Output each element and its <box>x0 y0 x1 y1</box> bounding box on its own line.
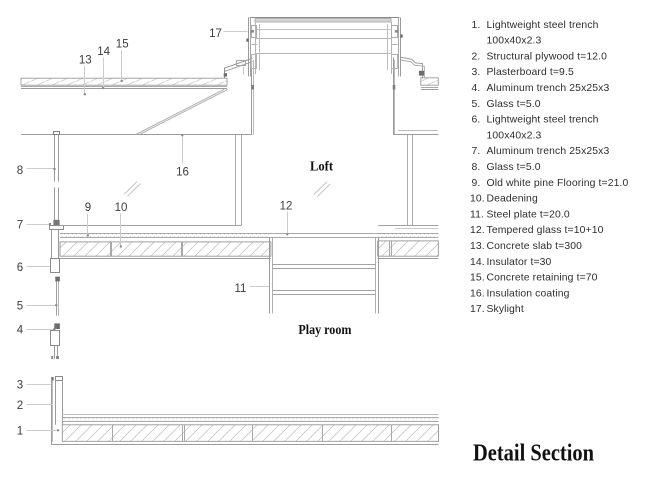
svg-text:11.: 11. <box>470 209 484 220</box>
svg-text:8.: 8. <box>472 162 481 173</box>
svg-text:12.: 12. <box>470 225 485 236</box>
svg-text:2: 2 <box>17 400 23 412</box>
svg-text:7.: 7. <box>472 146 481 157</box>
svg-text:3.: 3. <box>472 67 481 78</box>
svg-text:13.: 13. <box>470 241 485 252</box>
svg-text:9: 9 <box>85 202 91 214</box>
svg-text:Play room: Play room <box>298 322 351 337</box>
svg-text:10: 10 <box>115 202 128 214</box>
svg-text:17.: 17. <box>470 304 485 315</box>
svg-text:Concrete retaining t=70: Concrete retaining t=70 <box>487 273 598 284</box>
svg-text:15.: 15. <box>470 273 485 284</box>
svg-text:Tempered glass t=10+10: Tempered glass t=10+10 <box>487 225 604 236</box>
svg-text:Old white pine Flooring t=21.0: Old white pine Flooring t=21.0 <box>487 178 629 189</box>
svg-text:Loft: Loft <box>310 158 333 173</box>
svg-text:7: 7 <box>17 219 23 231</box>
svg-text:9.: 9. <box>472 178 481 189</box>
svg-text:Deadening: Deadening <box>487 194 538 205</box>
svg-text:Aluminum trench 25x25x3: Aluminum trench 25x25x3 <box>487 83 610 94</box>
svg-text:14: 14 <box>97 46 110 58</box>
svg-text:11: 11 <box>235 283 247 295</box>
svg-text:Glass t=5.0: Glass t=5.0 <box>487 99 541 110</box>
svg-text:2.: 2. <box>472 51 481 62</box>
svg-text:14.: 14. <box>470 257 485 268</box>
svg-text:10.: 10. <box>470 194 485 205</box>
svg-text:Lightweight steel trench: Lightweight steel trench <box>487 115 599 126</box>
svg-text:5: 5 <box>17 301 23 313</box>
svg-text:100x40x2.3: 100x40x2.3 <box>487 36 542 47</box>
svg-text:Detail Section: Detail Section <box>473 441 594 467</box>
svg-text:4.: 4. <box>472 83 481 94</box>
svg-text:15: 15 <box>116 39 129 51</box>
svg-text:Concrete slab t=300: Concrete slab t=300 <box>487 241 583 252</box>
svg-text:8: 8 <box>17 165 23 177</box>
svg-text:17: 17 <box>209 28 222 40</box>
svg-text:13: 13 <box>79 55 92 67</box>
svg-text:Skylight: Skylight <box>487 304 524 315</box>
svg-text:4: 4 <box>17 325 24 337</box>
svg-text:1.: 1. <box>472 20 481 31</box>
svg-text:16.: 16. <box>470 288 485 299</box>
svg-text:3: 3 <box>17 379 23 391</box>
svg-text:Lightweight steel trench: Lightweight steel trench <box>487 20 599 31</box>
svg-text:Insulation coating: Insulation coating <box>487 288 570 299</box>
svg-text:100x40x2.3: 100x40x2.3 <box>487 130 542 141</box>
svg-text:5.: 5. <box>472 99 481 110</box>
svg-text:16: 16 <box>176 167 189 179</box>
svg-text:Plasterboard t=9.5: Plasterboard t=9.5 <box>487 67 574 78</box>
svg-text:Steel plate t=20.0: Steel plate t=20.0 <box>487 209 570 220</box>
svg-text:Structural plywood t=12.0: Structural plywood t=12.0 <box>487 51 608 62</box>
svg-text:1: 1 <box>17 426 23 438</box>
svg-text:Glass t=5.0: Glass t=5.0 <box>487 162 541 173</box>
svg-text:6: 6 <box>17 262 23 274</box>
svg-text:Insulator t=30: Insulator t=30 <box>487 257 552 268</box>
svg-text:12: 12 <box>280 200 293 212</box>
svg-text:6.: 6. <box>472 115 481 126</box>
svg-text:Aluminum trench 25x25x3: Aluminum trench 25x25x3 <box>487 146 610 157</box>
